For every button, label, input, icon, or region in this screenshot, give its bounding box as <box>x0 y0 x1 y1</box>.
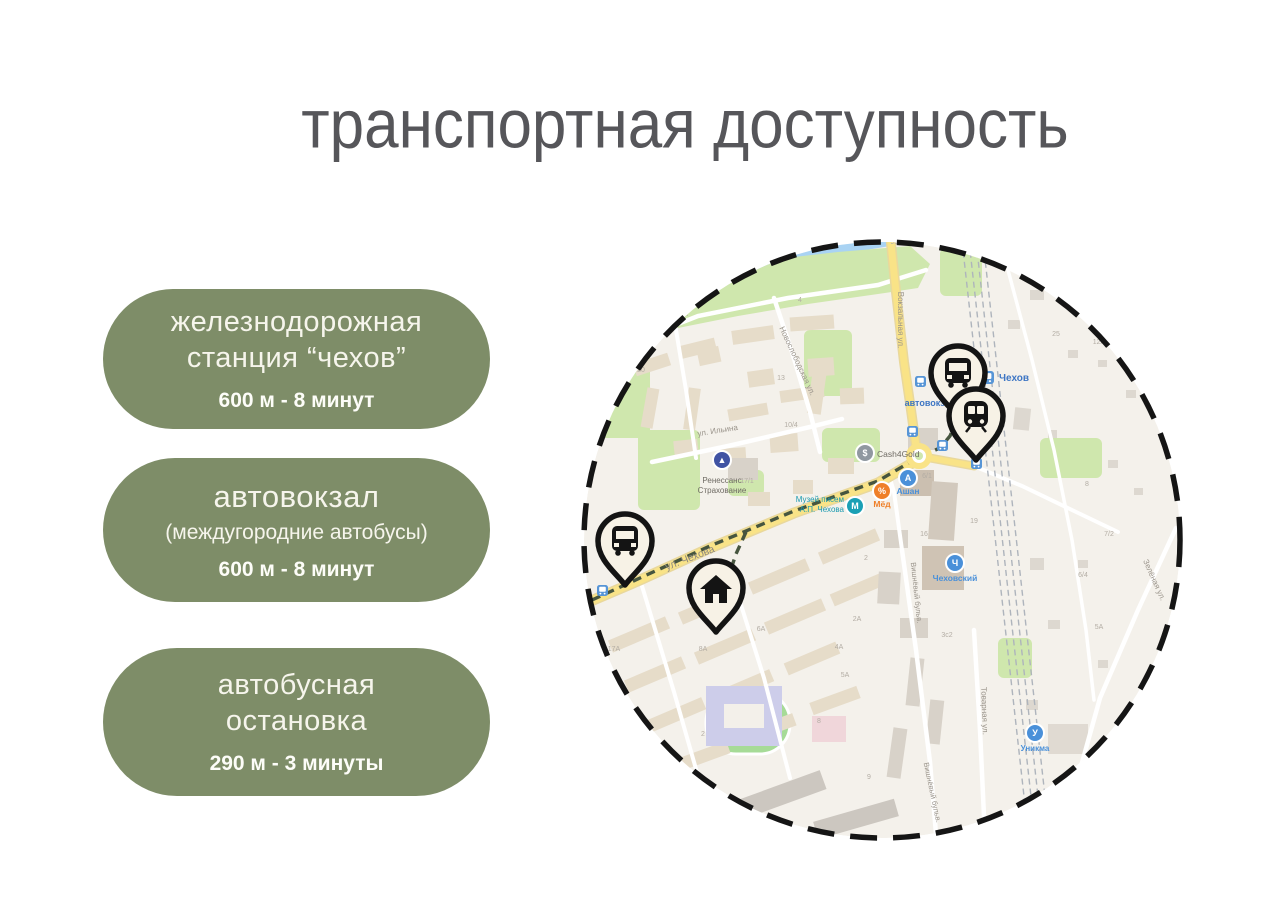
poi-icon: $ <box>856 444 874 462</box>
svg-text:Ч: Ч <box>952 558 958 568</box>
map-background <box>584 242 1180 838</box>
map-label: 9к2 <box>598 397 609 404</box>
card-bus-stop-distance: 290 м - 3 минуты <box>210 752 384 776</box>
map-label: Музей писем <box>796 495 844 504</box>
map-label: 8А <box>699 646 708 653</box>
card-bus-terminal: автовокзал (междугородние автобусы) 600 … <box>103 458 490 602</box>
card-bus-stop: автобусная остановка 290 м - 3 минуты <box>103 648 490 796</box>
building <box>1030 558 1044 570</box>
svg-text:У: У <box>1032 728 1038 738</box>
map-label: 8 <box>1085 481 1089 488</box>
slide: транспортная доступность железнодорожная… <box>0 0 1280 904</box>
building <box>1078 560 1088 568</box>
city-map: ▲$М%АЧУ9с14201310/49к217/12512А17А8А6А4А… <box>578 230 1190 852</box>
map-label: Cash4Gold <box>877 449 920 459</box>
map-label: Мёд <box>873 499 891 509</box>
poi-icon: У <box>1026 724 1044 742</box>
map-label: Чеховский <box>933 573 978 583</box>
map-label: 2А <box>853 616 862 623</box>
transit-stop-icon <box>907 426 918 437</box>
building <box>1098 660 1108 668</box>
map-label: Чехов <box>999 373 1029 384</box>
map-label: 13 <box>777 375 785 382</box>
svg-text:%: % <box>878 486 886 496</box>
map-label: 5А <box>1095 624 1104 631</box>
building <box>840 388 865 405</box>
map-label: 17А <box>608 646 621 653</box>
poi-icon: Ч <box>946 554 964 572</box>
poi-icon: А <box>899 469 917 487</box>
map-label: Ренессанс <box>702 476 741 485</box>
poi-icon: % <box>873 482 891 500</box>
svg-text:А: А <box>905 473 912 483</box>
transit-stop-icon <box>597 585 608 596</box>
map-label: Ашан <box>896 486 919 496</box>
map-label: Вокзальная ул. <box>896 292 905 348</box>
building <box>793 480 813 494</box>
map-label: Страхование <box>698 486 747 495</box>
building <box>928 481 958 541</box>
green-area <box>1040 438 1102 478</box>
map-label: Уникма <box>1021 744 1050 753</box>
map-label: 16 <box>920 531 928 538</box>
card-bus-terminal-title: автовокзал <box>214 478 380 516</box>
building <box>1068 350 1078 358</box>
map-circle: ▲$М%АЧУ9с14201310/49к217/12512А17А8А6А4А… <box>578 230 1190 852</box>
map-label: 2 <box>701 731 705 738</box>
card-railway-station: железнодорожная станция “чехов” 600 м - … <box>103 289 490 429</box>
green-area <box>998 638 1032 678</box>
svg-text:М: М <box>851 501 859 511</box>
building <box>1098 360 1107 367</box>
card-bus-terminal-sub: (междугородние автобусы) <box>165 521 427 545</box>
building <box>828 458 854 474</box>
map-label: 7/2 <box>1104 531 1114 538</box>
map-label: 19 <box>970 518 978 525</box>
building <box>724 704 764 728</box>
page-title: транспортная доступность <box>140 86 1230 164</box>
map-label: 17/1 <box>740 478 754 485</box>
building <box>1048 620 1060 629</box>
svg-text:▲: ▲ <box>718 455 727 465</box>
card-railway-distance: 600 м - 8 минут <box>219 389 375 413</box>
card-railway-title: железнодорожная станция “чехов” <box>163 305 430 376</box>
map-label: 4 <box>798 297 802 304</box>
map-label: 6А <box>757 626 766 633</box>
transit-stop-icon <box>915 376 926 387</box>
map-label: 25 <box>1052 331 1060 338</box>
map-label: 5А <box>841 672 850 679</box>
building <box>748 492 770 506</box>
map-label: 9 <box>867 774 871 781</box>
building <box>1126 390 1136 398</box>
poi-icon: М <box>846 497 864 515</box>
building <box>1134 488 1143 495</box>
transit-stop-icon <box>937 440 948 451</box>
map-label: 6/1 <box>922 473 932 480</box>
building <box>877 571 901 604</box>
map-label: 4А <box>835 644 844 651</box>
building <box>1008 320 1020 329</box>
map-label: А.П. Чехова <box>800 505 845 514</box>
map-label: 2 <box>864 555 868 562</box>
svg-text:$: $ <box>862 448 867 458</box>
poi-icon: ▲ <box>713 451 731 469</box>
card-bus-terminal-distance: 600 м - 8 минут <box>219 558 375 582</box>
building <box>884 530 908 548</box>
card-bus-stop-title: автобусная остановка <box>163 668 430 739</box>
map-label: 8 <box>817 718 821 725</box>
building <box>1048 724 1088 754</box>
map-label: 10/4 <box>784 422 798 429</box>
map-label: 6/4 <box>1078 572 1088 579</box>
map-label: 3с2 <box>941 632 952 639</box>
building <box>1108 460 1118 468</box>
map-label: Товарная ул. <box>979 687 990 735</box>
building <box>1013 407 1031 431</box>
